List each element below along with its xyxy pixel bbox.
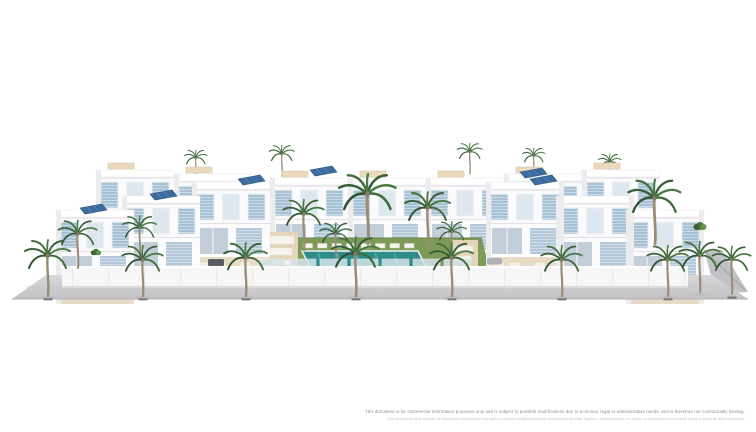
- disclaimer: This document is for commercial informat…: [365, 409, 745, 421]
- brochure-page: This document is for commercial informat…: [0, 0, 756, 432]
- disclaimer-line-en: This document is for commercial informat…: [365, 409, 745, 414]
- disclaimer-line-es: Este documento tiene carácter de informa…: [365, 417, 745, 421]
- development-rendering: [0, 0, 756, 432]
